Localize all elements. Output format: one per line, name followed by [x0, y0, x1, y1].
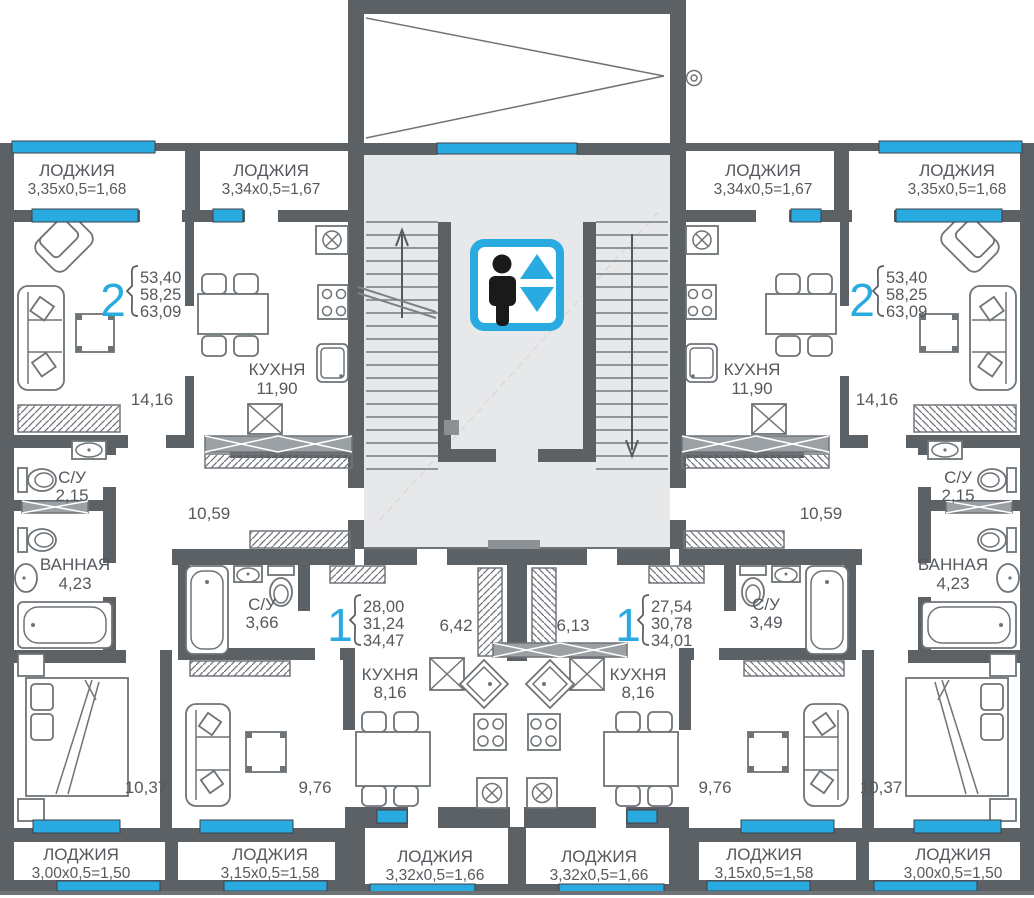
loggia-glazing [224, 881, 327, 891]
wc-sink-icon [234, 566, 262, 582]
loggia-dims: 3,32x0,5=1,66 [386, 867, 485, 884]
kitchen-counter-hatch [205, 454, 352, 468]
loggia-dims: 3,00x0,5=1,50 [904, 865, 1003, 882]
stair-core [0, 0, 1034, 895]
area-total: 53,40 [886, 269, 927, 287]
room-area: 14,16 [856, 390, 899, 409]
wc-sink-icon [72, 441, 106, 459]
loggia-dims: 3,32x0,5=1,66 [550, 867, 649, 884]
floor-plan-page: ЛОДЖИЯ 3,35x0,5=1,68 ЛОДЖИЯ 3,34x0,5=1,6… [0, 0, 1034, 898]
room-area: 14,16 [131, 390, 174, 409]
room-area: 6,42 [439, 616, 472, 635]
room-label: С/У [752, 595, 780, 614]
room-area: 6,13 [556, 616, 589, 635]
stove-icon [474, 714, 506, 750]
room-area: 11,90 [256, 379, 297, 398]
floor-plan-drawing: ЛОДЖИЯ 3,35x0,5=1,68 ЛОДЖИЯ 3,34x0,5=1,6… [0, 0, 1034, 898]
loggia-label: ЛОДЖИЯ [919, 161, 995, 180]
apartment-number: 1 [327, 599, 353, 651]
loggia-label: ЛОДЖИЯ [233, 161, 309, 180]
nightstand [18, 654, 44, 676]
kitchen-sink-icon [317, 344, 348, 382]
room-area: 10,59 [188, 504, 231, 523]
room-area: 10,37 [860, 778, 903, 797]
apartment-number: 2 [100, 274, 126, 326]
loggia-dims: 3,34x0,5=1,67 [222, 181, 321, 198]
sofa [18, 286, 64, 390]
loggia-label: ЛОДЖИЯ [397, 847, 473, 866]
loggia-dims: 3,15x0,5=1,58 [221, 865, 320, 882]
room-area: 8,16 [621, 683, 654, 702]
loggia-glazing [57, 881, 160, 891]
bathtub-icon [18, 602, 112, 648]
room-label: КУХНЯ [362, 665, 419, 684]
stairs-right-flight [596, 220, 668, 470]
loggia-window [12, 141, 155, 153]
loggia-label: ЛОДЖИЯ [561, 847, 637, 866]
room-area: 2,15 [55, 486, 88, 505]
bath-sink-icon [15, 564, 37, 592]
sofa [186, 704, 230, 806]
riser-icon [687, 71, 702, 86]
stairs-left-flight [358, 220, 438, 470]
loggia-dims: 3,35x0,5=1,68 [908, 181, 1007, 198]
area-living: 58,25 [140, 286, 181, 304]
room-area: 11,90 [731, 379, 772, 398]
shower-bath-icon [186, 566, 228, 654]
apartment-number: 1 [615, 599, 641, 651]
kitchen-window [377, 810, 407, 823]
room-area: 4,23 [936, 574, 969, 593]
room-area: 8,16 [373, 683, 406, 702]
room-label: КУХНЯ [610, 665, 667, 684]
loggia-dims: 3,00x0,5=1,50 [32, 865, 131, 882]
room-window [32, 209, 138, 222]
elevator-icon [470, 239, 564, 331]
loggia-label: ЛОДЖИЯ [915, 845, 991, 864]
room-label: С/У [944, 468, 972, 487]
room-label: С/У [58, 468, 86, 487]
room-area: 3,66 [245, 613, 278, 632]
area-living: 58,25 [886, 286, 927, 304]
area-full: 63,09 [886, 303, 927, 321]
loggia-label: ЛОДЖИЯ [232, 845, 308, 864]
fridge-icon [248, 404, 282, 434]
corner-sink-icon [460, 660, 508, 708]
room-area: 10,59 [800, 504, 843, 523]
room-area: 9,76 [298, 778, 331, 797]
nightstand [18, 799, 44, 821]
loggia-label: ЛОДЖИЯ [726, 845, 802, 864]
area-total: 28,00 [363, 598, 404, 616]
kitchen-counter [493, 643, 627, 657]
closet-hatch [330, 566, 385, 583]
loggia-label: ЛОДЖИЯ [43, 845, 119, 864]
ground-line [0, 891, 1034, 895]
dining-table [356, 712, 430, 806]
area-total: 53,40 [140, 269, 181, 287]
room-label: ВАННАЯ [40, 555, 110, 574]
room-area: 4,23 [58, 574, 91, 593]
stairwell-window [437, 143, 577, 154]
room-area: 3,49 [749, 613, 782, 632]
closet-hatch [18, 405, 120, 432]
area-total: 27,54 [651, 598, 692, 616]
loggia-label: ЛОДЖИЯ [725, 161, 801, 180]
area-full: 34,01 [651, 632, 692, 650]
closet-hatch [190, 661, 290, 676]
room-area: 9,76 [698, 778, 731, 797]
room-area: 2,15 [941, 486, 974, 505]
kitchen-counter [205, 436, 352, 452]
closet-hatch [250, 531, 350, 548]
toilet-icon [18, 468, 56, 492]
kitchen-window [213, 209, 243, 222]
stove-icon [318, 285, 348, 319]
coffee-table [246, 732, 286, 772]
room-label: С/У [248, 595, 276, 614]
loggia-label: ЛОДЖИЯ [39, 161, 115, 180]
room-label: ВАННАЯ [918, 555, 988, 574]
loggia-dims: 3,15x0,5=1,58 [715, 865, 814, 882]
area-full: 34,47 [363, 632, 404, 650]
room-label: КУХНЯ [249, 360, 306, 379]
dining-table [198, 274, 268, 356]
living-window [200, 820, 293, 833]
area-brace [127, 266, 138, 316]
area-living: 30,78 [651, 615, 692, 633]
double-bed [26, 678, 128, 796]
area-full: 63,09 [140, 303, 181, 321]
loggia-dims: 3,34x0,5=1,67 [714, 181, 813, 198]
apartment-number: 2 [849, 274, 875, 326]
room-area: 10,37 [125, 778, 168, 797]
bedroom-window [33, 820, 120, 833]
toilet-icon [18, 528, 56, 552]
area-living: 31,24 [363, 615, 404, 633]
entrance-porch [488, 540, 540, 549]
washing-machine-icon [316, 226, 348, 254]
washing-machine-icon [477, 778, 507, 808]
loggia-dims: 3,35x0,5=1,68 [28, 181, 127, 198]
room-label: КУХНЯ [724, 360, 781, 379]
fridge-icon [430, 658, 464, 690]
